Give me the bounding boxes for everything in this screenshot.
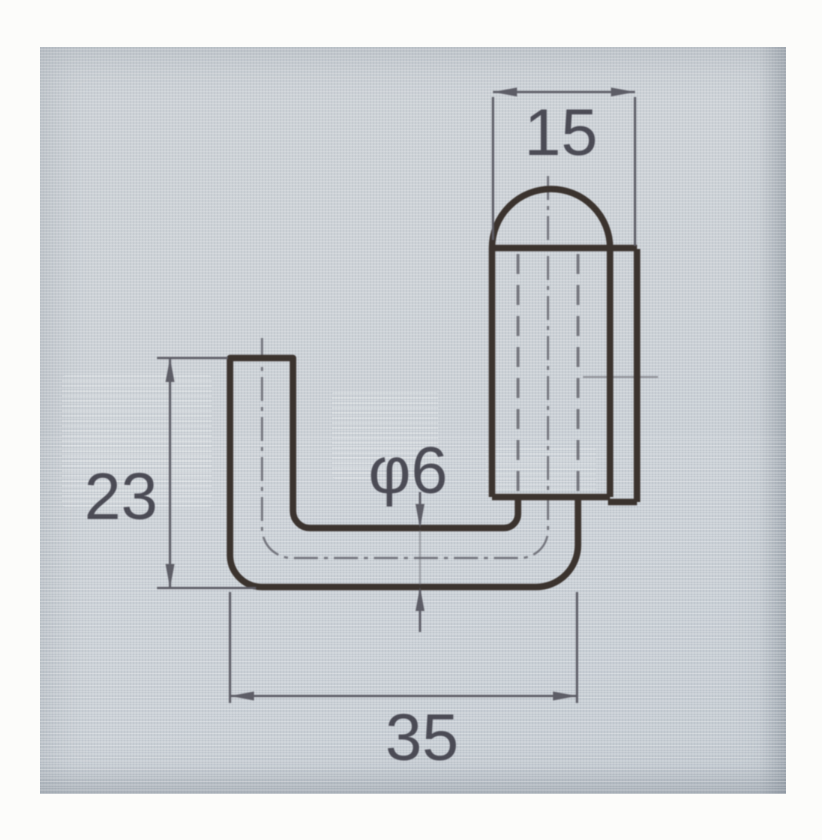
- screen-photo: 15 23 35: [40, 47, 786, 794]
- dim-left-height-label: 23: [84, 459, 157, 533]
- screenshot-root: 15 23 35: [0, 0, 822, 840]
- technical-drawing-svg: 15 23 35: [40, 47, 786, 794]
- dimension-left-height: [157, 358, 256, 588]
- dimension-bottom-width: [230, 592, 577, 703]
- dim-bottom-width-label: 35: [385, 700, 458, 774]
- dim-top-width-label: 15: [524, 95, 597, 169]
- rod-diameter-label: φ6: [368, 433, 448, 507]
- knob-outline: [492, 189, 637, 502]
